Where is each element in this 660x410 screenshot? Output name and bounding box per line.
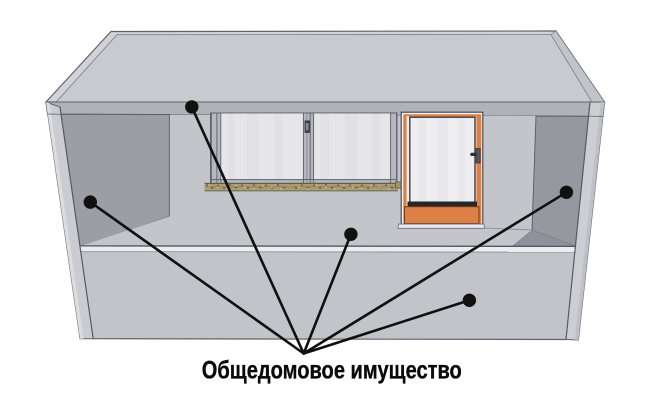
svg-text:Общедомовое имущество: Общедомовое имущество xyxy=(202,356,462,384)
